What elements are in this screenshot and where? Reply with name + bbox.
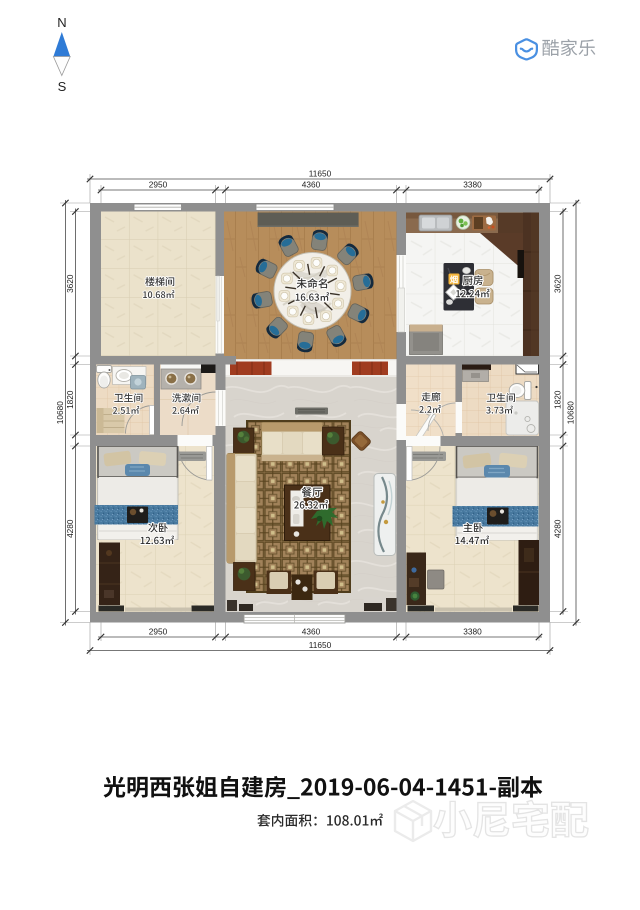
svg-text:3380: 3380 [463, 180, 482, 190]
svg-text:3620: 3620 [65, 274, 75, 293]
svg-text:2950: 2950 [149, 180, 168, 190]
svg-text:10680: 10680 [566, 401, 576, 424]
svg-text:11650: 11650 [309, 640, 332, 650]
svg-text:1820: 1820 [65, 390, 75, 409]
svg-text:4360: 4360 [302, 180, 321, 190]
svg-text:S: S [58, 79, 67, 94]
svg-text:4280: 4280 [553, 519, 563, 538]
svg-text:10680: 10680 [55, 401, 65, 424]
svg-text:1820: 1820 [553, 390, 563, 409]
svg-text:4280: 4280 [65, 519, 75, 538]
svg-text:N: N [57, 15, 66, 30]
svg-text:2950: 2950 [149, 627, 168, 637]
svg-text:3380: 3380 [463, 627, 482, 637]
svg-text:3620: 3620 [553, 274, 563, 293]
svg-text:11650: 11650 [309, 169, 332, 179]
svg-text:4360: 4360 [302, 627, 321, 637]
